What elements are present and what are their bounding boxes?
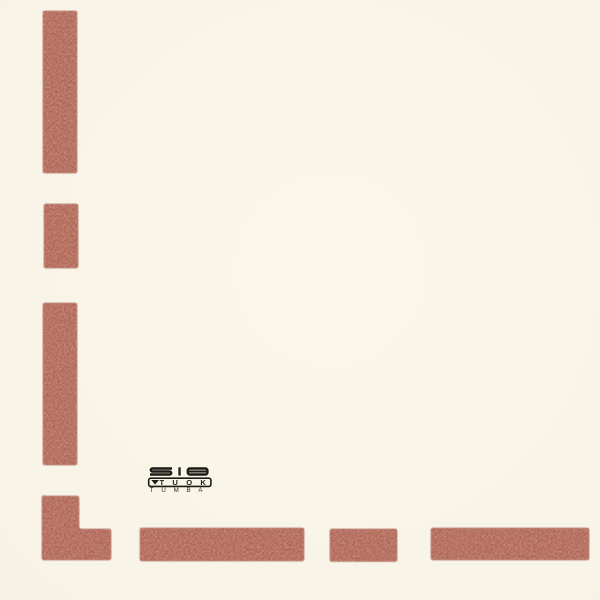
svg-text:TUMBA: TUMBA (150, 487, 209, 494)
